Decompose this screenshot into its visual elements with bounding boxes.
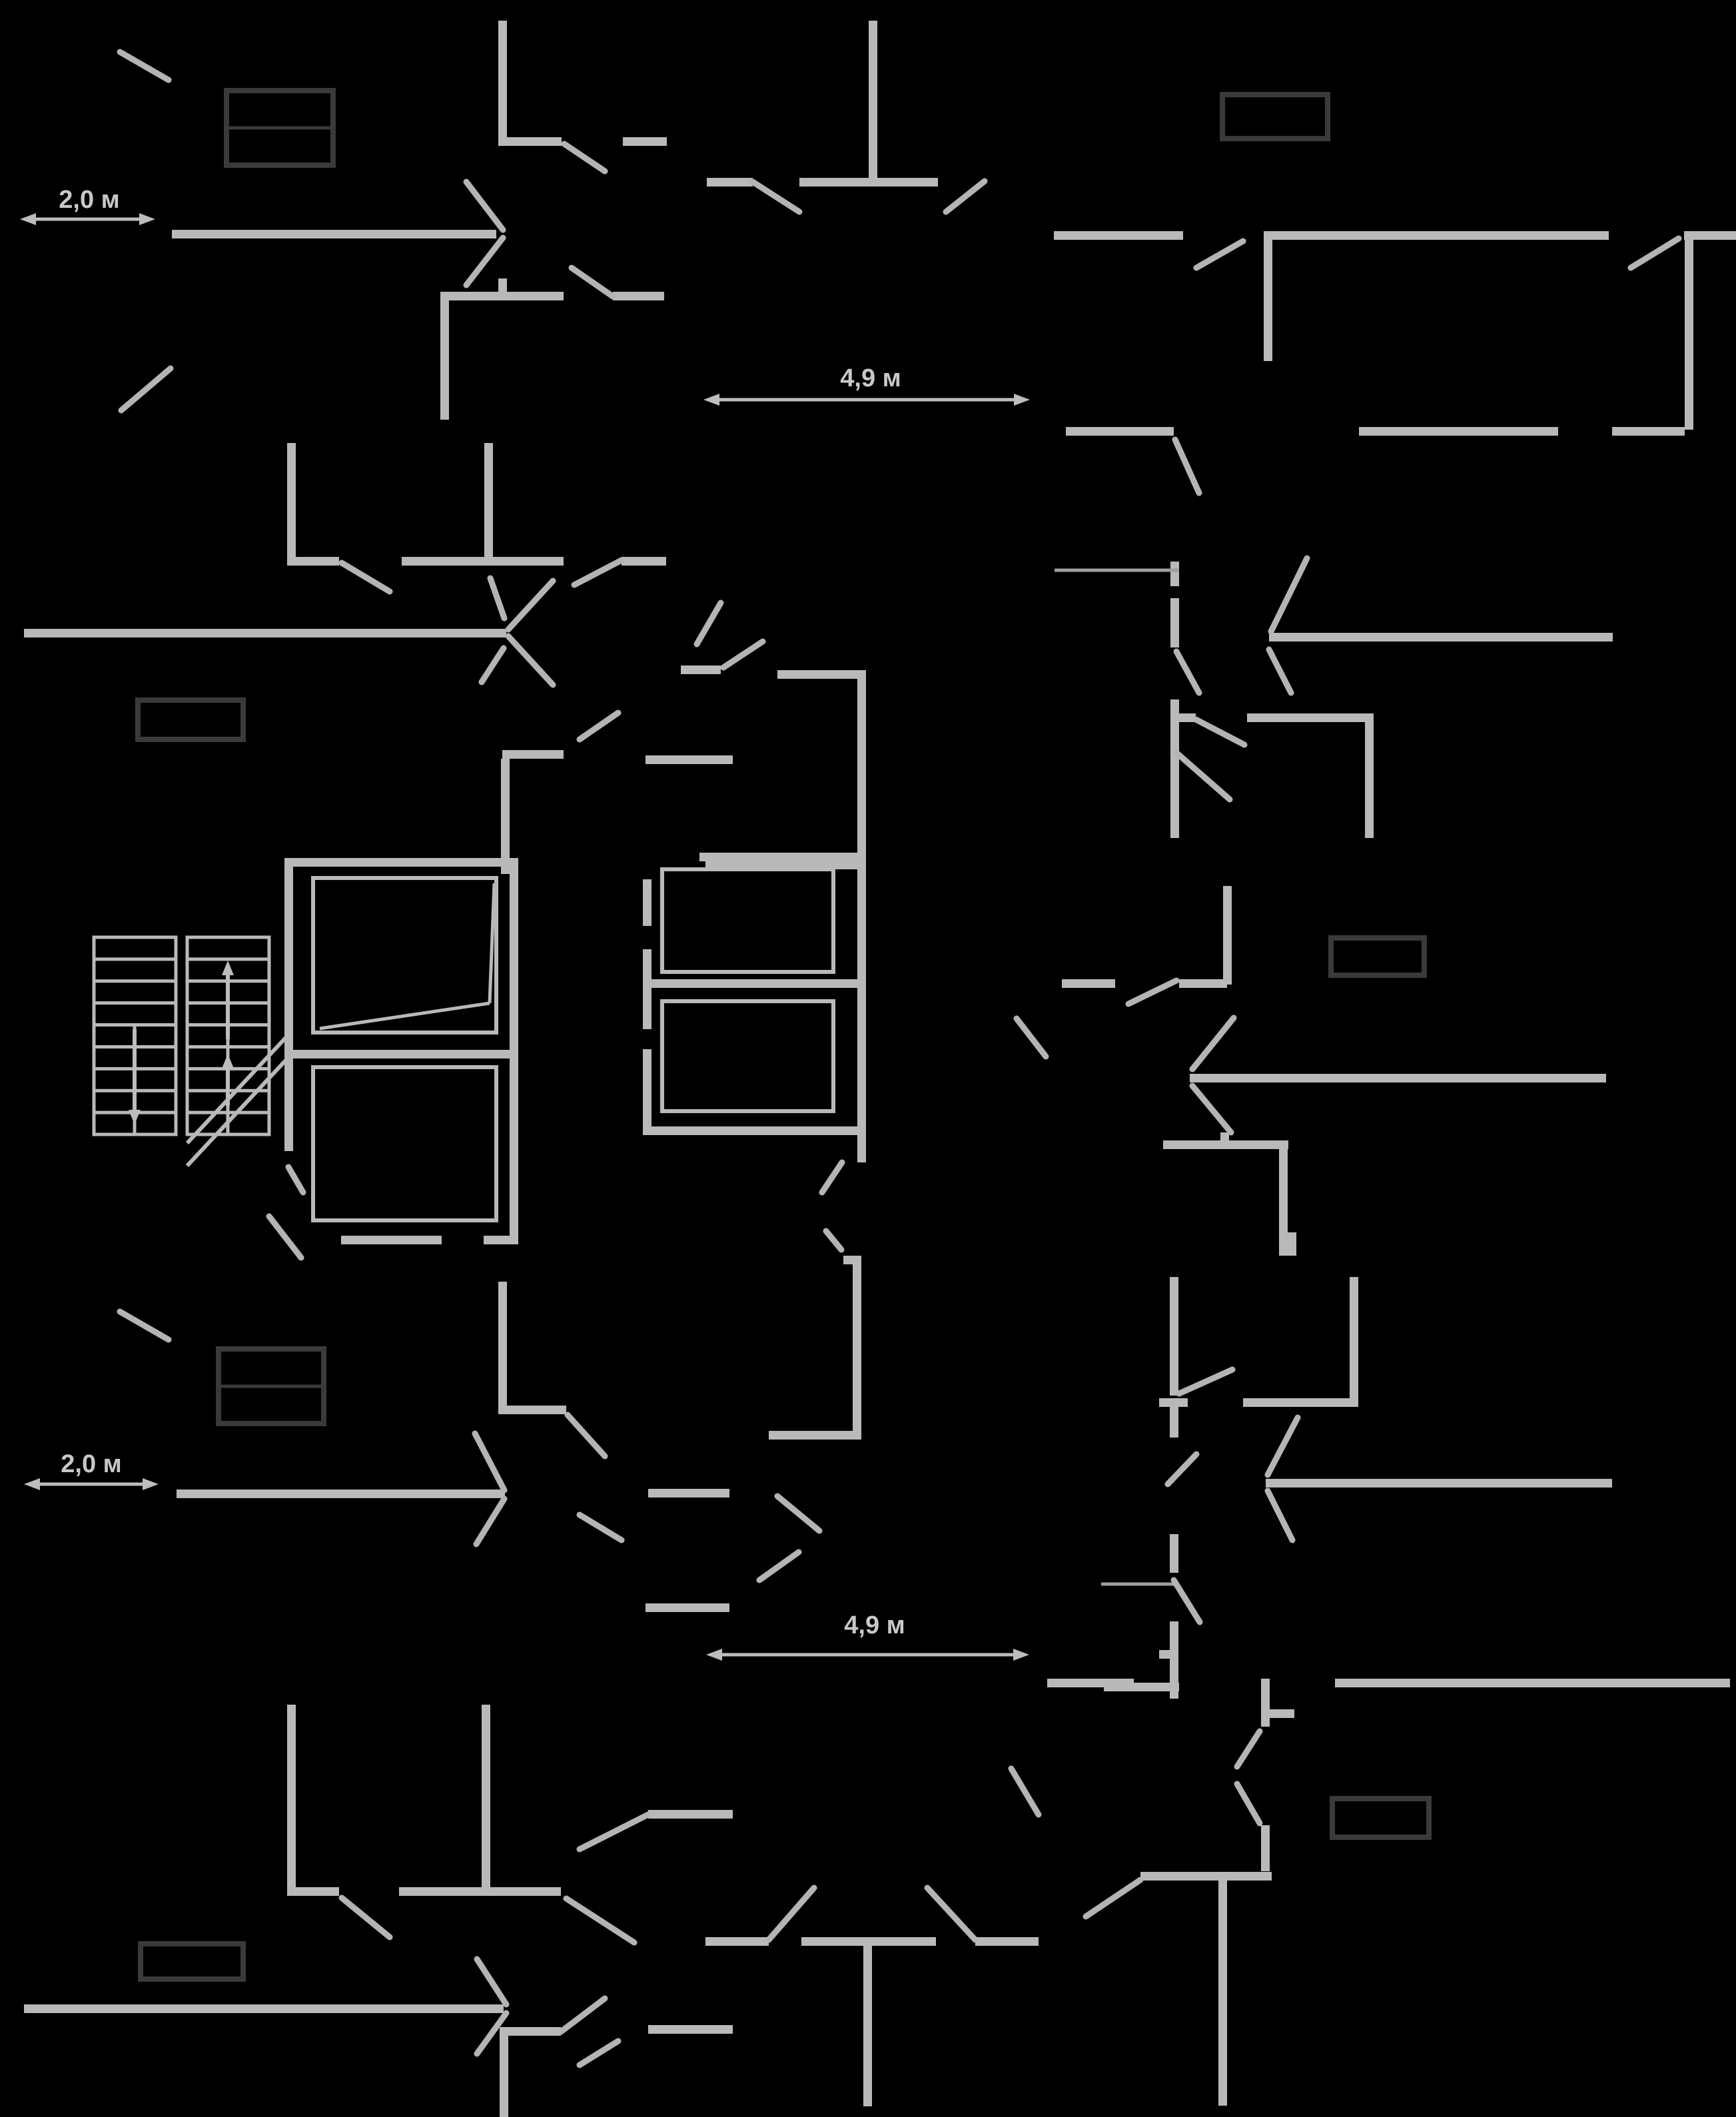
wall-segment (287, 443, 296, 562)
wall-segment (1170, 562, 1179, 586)
wall-segment (769, 1431, 861, 1440)
wall-segment (623, 137, 667, 146)
wall-segment (1140, 1872, 1272, 1881)
wall-segment (643, 1126, 859, 1135)
wall-segment (646, 755, 733, 764)
wall-segment (777, 670, 866, 679)
wall-segment (284, 1050, 518, 1058)
wall-segment (1261, 1709, 1294, 1718)
wall-segment (1170, 1405, 1178, 1438)
wall-segment (287, 557, 339, 566)
dimension-label: 2,0 м (61, 1450, 122, 1478)
dimension-label: 4,9 м (844, 1611, 905, 1639)
wall-segment (482, 1705, 490, 1892)
wall-segment (24, 2004, 504, 2013)
wall-segment (1612, 427, 1685, 436)
wall-segment (707, 178, 753, 187)
wall-segment (1047, 1679, 1134, 1687)
wall-segment (801, 1937, 936, 1946)
wall-segment (399, 1887, 561, 1896)
wall-segment (501, 759, 510, 874)
wall-segment (500, 2027, 508, 2117)
wall-segment (843, 1256, 861, 1264)
wall-segment (1220, 1132, 1229, 1140)
wall-segment (498, 1406, 566, 1414)
wall-segment (1170, 598, 1179, 647)
wall-segment (613, 292, 664, 300)
wall-segment (284, 858, 518, 867)
wall-segment (484, 443, 493, 562)
wall-segment (1350, 1277, 1358, 1407)
dimension-label: 4,9 м (840, 364, 901, 392)
wall-segment (1159, 1398, 1188, 1407)
wall-segment (857, 670, 866, 869)
wall-segment (1163, 1140, 1288, 1149)
wall-segment (863, 1946, 872, 2106)
wall-segment (1684, 231, 1736, 240)
wall-segment (643, 1049, 651, 1135)
wall-segment (643, 949, 651, 1029)
wall-segment (853, 1264, 861, 1436)
wall-segment (24, 629, 506, 637)
wall-segment (1288, 1232, 1296, 1256)
wall-segment (975, 1937, 1039, 1946)
wall-segment (1269, 633, 1613, 641)
wall-segment (500, 2027, 561, 2036)
wall-segment (799, 178, 938, 187)
wall-segment (1218, 1881, 1227, 2106)
floor-plan-drawing: 2,0 м4,9 м2,0 м4,9 м (0, 0, 1736, 2117)
wall-segment (681, 665, 721, 674)
wall-segment (402, 557, 564, 566)
wall-segment (1264, 231, 1609, 240)
wall-segment (705, 1937, 769, 1946)
wall-segment (1335, 1679, 1730, 1687)
wall-segment (857, 869, 866, 1132)
wall-segment (1359, 427, 1558, 436)
wall-segment (1223, 886, 1232, 985)
wall-segment (502, 750, 564, 759)
wall-segment (1170, 713, 1196, 722)
wall-segment (1243, 1398, 1358, 1407)
wall-segment (1066, 427, 1174, 436)
wall-segment (284, 867, 293, 1151)
wall-segment (1264, 240, 1272, 361)
wall-segment (177, 1489, 505, 1498)
wall-segment (1190, 1074, 1606, 1082)
wall-segment (1279, 1149, 1288, 1256)
wall-segment (1266, 1479, 1612, 1487)
wall-segment (440, 292, 564, 300)
wall-segment (1685, 231, 1693, 430)
wall-segment (699, 853, 859, 861)
wall-segment (1179, 979, 1227, 988)
wall-segment (287, 1705, 296, 1892)
wall-segment (643, 879, 651, 926)
wall-segment (1261, 1825, 1270, 1871)
wall-segment (341, 1236, 442, 1244)
wall-segment (1261, 1679, 1270, 1727)
wall-segment (1170, 1277, 1178, 1396)
wall-segment (622, 557, 666, 566)
wall-segment (1170, 1534, 1178, 1573)
wall-segment (172, 230, 496, 238)
wall-segment (1159, 1650, 1170, 1659)
wall-segment (1365, 722, 1374, 838)
wall-segment (1062, 979, 1115, 988)
wall-segment (648, 2025, 733, 2034)
wall-segment (440, 300, 449, 420)
wall-segment (648, 1810, 733, 1819)
wall-segment (498, 21, 507, 146)
wall-segment (646, 1603, 729, 1612)
dimension-label: 2,0 м (59, 186, 120, 214)
wall-segment (1054, 231, 1183, 240)
wall-segment (498, 1282, 507, 1412)
wall-segment (498, 278, 507, 292)
plan-background (0, 0, 1736, 2117)
wall-segment (287, 1887, 339, 1896)
wall-segment (1247, 713, 1374, 722)
wall-segment (857, 1132, 866, 1162)
wall-segment (498, 137, 562, 146)
wall-segment (648, 1489, 729, 1497)
wall-segment (869, 21, 877, 187)
floor-plan-canvas: 2,0 м4,9 м2,0 м4,9 м (0, 0, 1736, 2117)
wall-segment (484, 1236, 518, 1244)
wall-segment (643, 979, 859, 988)
